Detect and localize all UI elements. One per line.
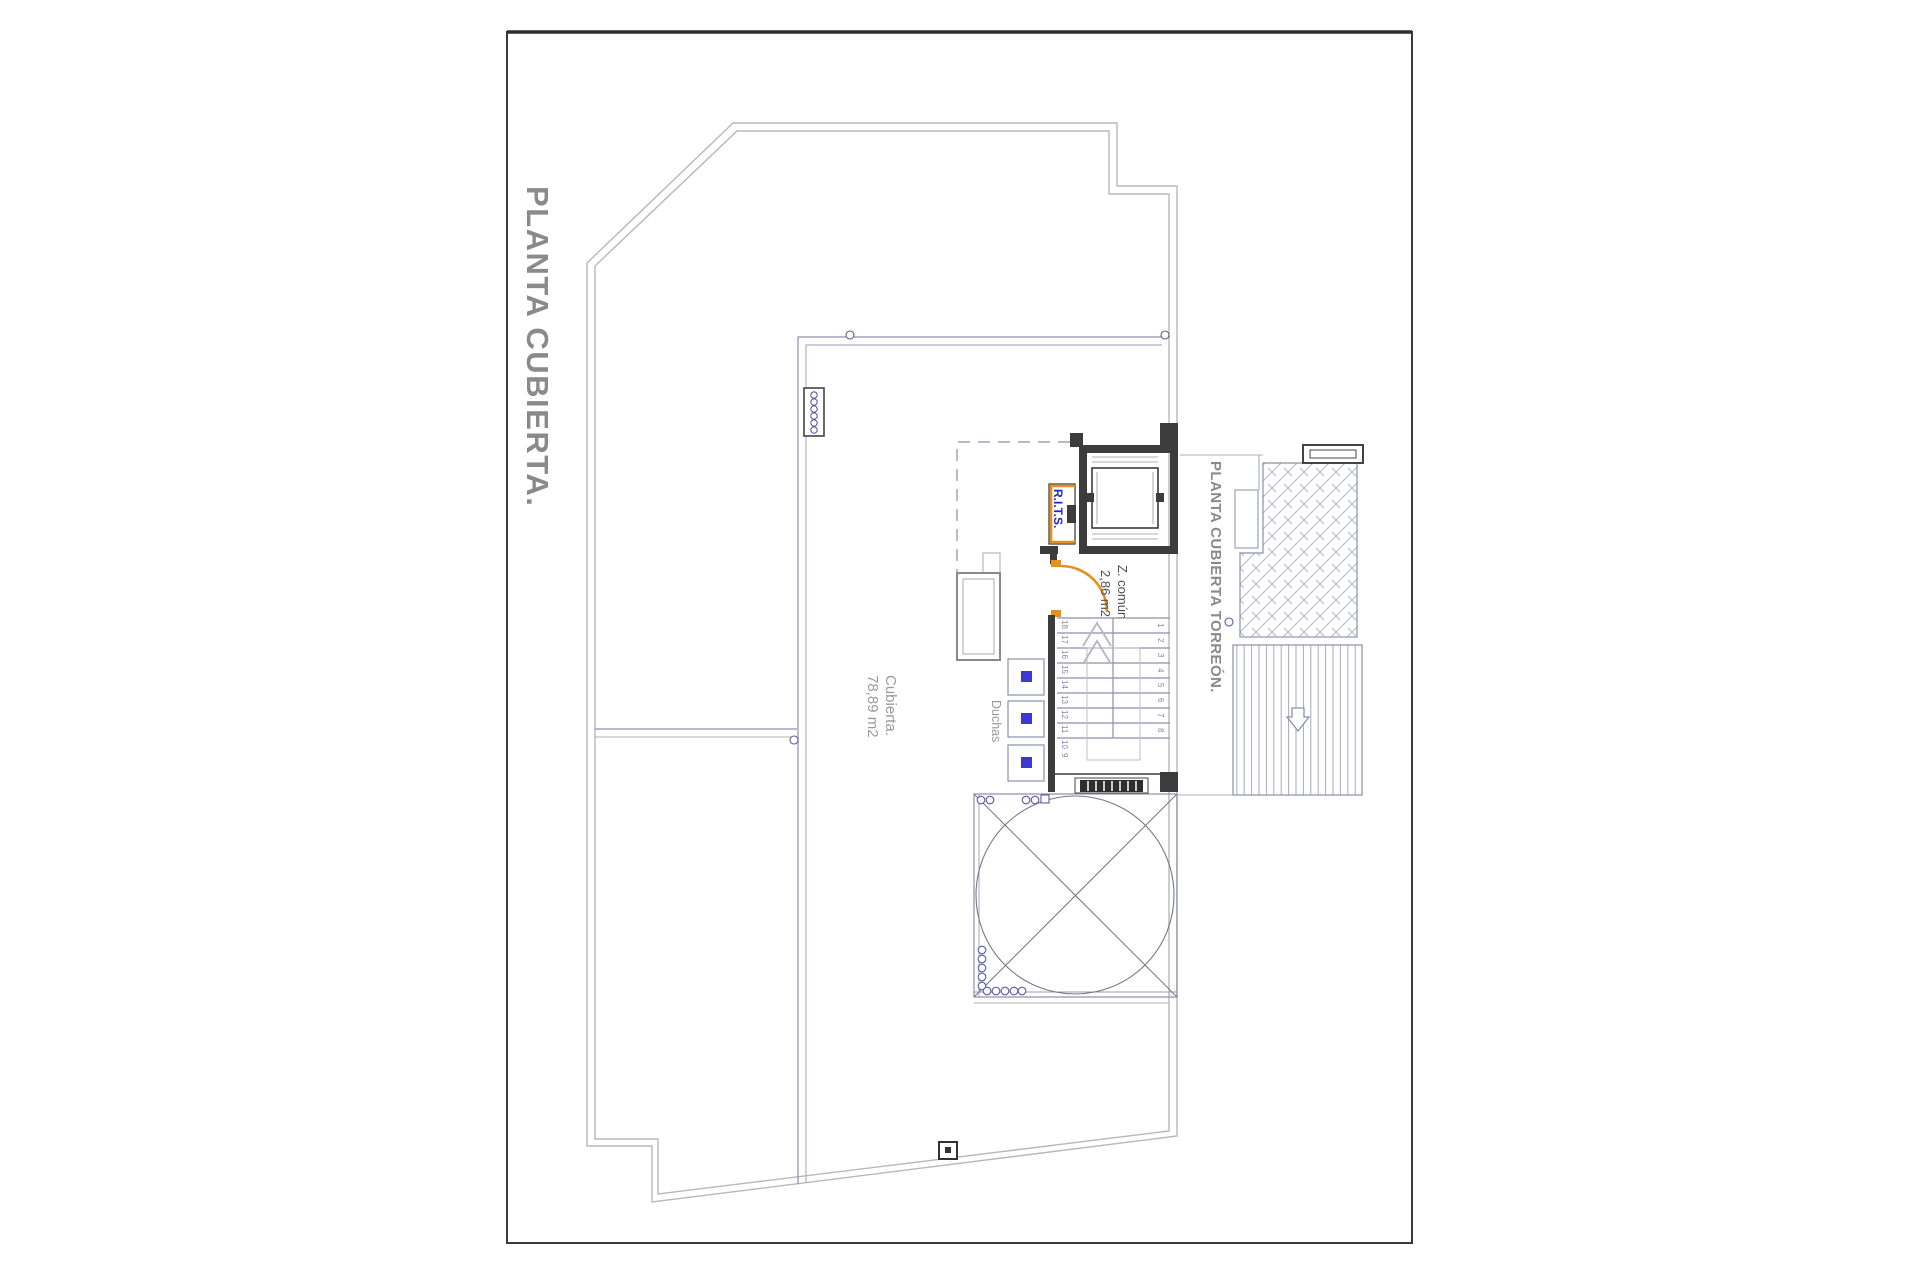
torreon-label: PLANTA CUBIERTA TORREÓN. — [1207, 461, 1225, 693]
pillar — [1160, 423, 1178, 445]
svg-text:12: 12 — [1060, 710, 1069, 719]
guide-rail — [1156, 493, 1164, 502]
door-leaf — [1067, 505, 1076, 523]
svg-text:10: 10 — [1060, 740, 1069, 749]
shower-drain — [1021, 757, 1032, 768]
svg-text:78,89 m2: 78,89 m2 — [864, 675, 881, 738]
shower-drain — [1021, 713, 1032, 724]
svg-text:3: 3 — [1156, 653, 1165, 658]
chimney — [1303, 445, 1363, 463]
drain-circle — [790, 736, 798, 744]
door-jamb — [1051, 560, 1061, 567]
area-label: Cubierta. 78,89 m2 — [864, 675, 899, 738]
drain-circle — [846, 331, 854, 339]
drain-circle — [1161, 331, 1169, 339]
svg-text:11: 11 — [1060, 725, 1069, 734]
svg-text:17: 17 — [1060, 635, 1069, 644]
rits-label: R.I.T.S. — [1051, 489, 1065, 528]
svg-text:16: 16 — [1060, 650, 1069, 659]
svg-text:7: 7 — [1156, 713, 1165, 718]
architectural-drawing-viewer: PLANTA CUBIERTA. — [0, 0, 1920, 1280]
vent-grid — [804, 388, 824, 436]
guide-rail — [1086, 493, 1094, 502]
svg-text:4: 4 — [1156, 668, 1165, 673]
svg-text:8: 8 — [1156, 728, 1165, 733]
drain-circle — [1225, 618, 1233, 626]
svg-text:Cubierta.: Cubierta. — [882, 675, 899, 736]
svg-text:2,86 m2: 2,86 m2 — [1098, 570, 1113, 617]
annex-notch — [1235, 490, 1258, 548]
pillar — [1070, 433, 1083, 447]
svg-text:Z. común: Z. común — [1115, 565, 1130, 619]
shower-drain — [1021, 671, 1032, 682]
bottom-marker — [939, 1142, 957, 1159]
floor-plan-drawing: PLANTA CUBIERTA. — [0, 0, 1920, 1280]
showers-label: Duchas — [989, 700, 1003, 742]
sheet-title: PLANTA CUBIERTA. — [520, 186, 555, 507]
svg-text:18: 18 — [1060, 620, 1069, 629]
svg-text:15: 15 — [1060, 665, 1069, 674]
svg-text:14: 14 — [1060, 680, 1069, 689]
svg-text:6: 6 — [1156, 698, 1165, 703]
svg-text:9: 9 — [1060, 753, 1069, 758]
svg-text:1: 1 — [1156, 623, 1165, 628]
svg-text:2: 2 — [1156, 638, 1165, 643]
svg-text:5: 5 — [1156, 683, 1165, 688]
svg-text:13: 13 — [1060, 695, 1069, 704]
pillar — [1160, 772, 1178, 792]
